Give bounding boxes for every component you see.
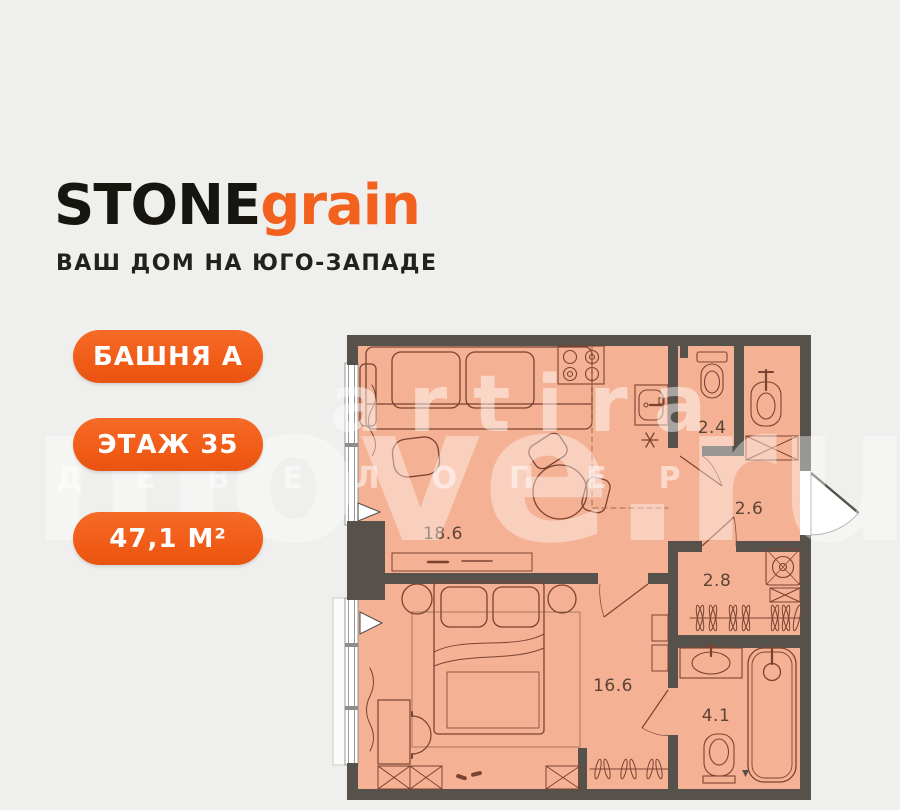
badge-area: 47,1 М² — [73, 512, 263, 565]
room-label-living: 18.6 — [423, 524, 463, 544]
floor-plan: 18.6 2.4 2.6 2.8 16.6 4.1 — [325, 330, 875, 800]
flyer: STONEgrain ВАШ ДОМ НА ЮГО-ЗАПАДЕ БАШНЯ А… — [0, 0, 900, 810]
entry-threshold — [800, 471, 811, 535]
entry-door — [811, 473, 859, 535]
brand-logo: STONEgrain — [54, 178, 420, 234]
room-label-hallway: 2.6 — [735, 499, 764, 519]
room-label-bathroom: 4.1 — [702, 706, 731, 726]
room-label-bedroom: 16.6 — [593, 676, 633, 696]
brand-name-primary: STONE — [54, 173, 260, 238]
badge-floor: ЭТАЖ 35 — [73, 418, 263, 471]
room-label-corridor: 2.8 — [703, 571, 732, 591]
badge-tower: БАШНЯ А — [73, 330, 263, 383]
brand-tagline: ВАШ ДОМ НА ЮГО-ЗАПАДЕ — [56, 251, 437, 276]
room-label-wc: 2.4 — [698, 418, 727, 438]
brand-name-secondary: grain — [260, 173, 420, 238]
